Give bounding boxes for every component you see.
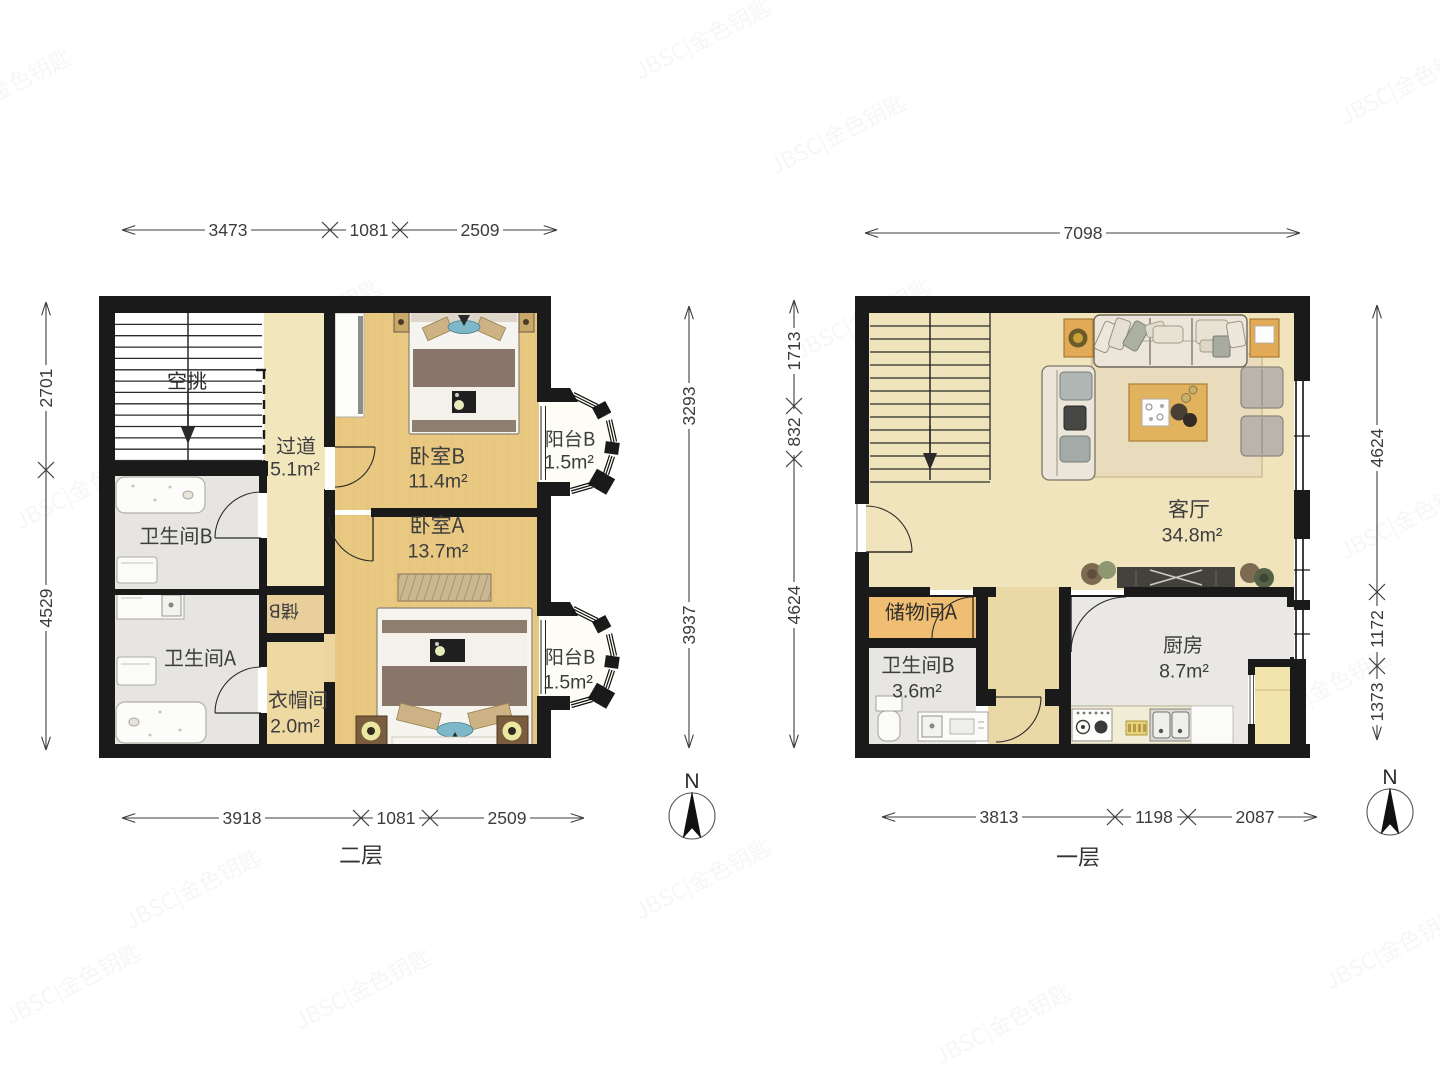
svg-text:3918: 3918 bbox=[223, 808, 262, 828]
svg-text:2701: 2701 bbox=[36, 369, 56, 408]
svg-text:3.6m²: 3.6m² bbox=[892, 681, 942, 703]
svg-text:7098: 7098 bbox=[1064, 223, 1103, 243]
svg-text:N: N bbox=[1382, 766, 1397, 789]
svg-text:4624: 4624 bbox=[784, 585, 804, 624]
svg-text:1081: 1081 bbox=[377, 808, 416, 828]
svg-text:2509: 2509 bbox=[488, 808, 527, 828]
svg-text:3813: 3813 bbox=[980, 807, 1019, 827]
svg-text:1713: 1713 bbox=[784, 332, 804, 371]
svg-text:1373: 1373 bbox=[1367, 683, 1387, 722]
svg-text:5.1m²: 5.1m² bbox=[270, 459, 320, 481]
svg-text:4624: 4624 bbox=[1367, 428, 1387, 467]
svg-text:2509: 2509 bbox=[461, 220, 500, 240]
svg-text:2.0m²: 2.0m² bbox=[270, 716, 320, 738]
svg-text:832: 832 bbox=[784, 417, 804, 446]
svg-text:3293: 3293 bbox=[679, 387, 699, 426]
svg-text:11.4m²: 11.4m² bbox=[408, 471, 468, 493]
svg-text:N: N bbox=[684, 770, 699, 793]
svg-text:1081: 1081 bbox=[350, 220, 389, 240]
svg-text:34.8m²: 34.8m² bbox=[1162, 525, 1223, 547]
svg-text:13.7m²: 13.7m² bbox=[408, 541, 469, 563]
svg-text:3473: 3473 bbox=[209, 220, 248, 240]
svg-text:8.7m²: 8.7m² bbox=[1159, 661, 1209, 683]
svg-text:4529: 4529 bbox=[36, 589, 56, 628]
svg-text:1172: 1172 bbox=[1367, 610, 1387, 648]
svg-text:1198: 1198 bbox=[1135, 807, 1173, 827]
svg-text:1.5m²: 1.5m² bbox=[544, 452, 594, 474]
svg-text:2087: 2087 bbox=[1236, 807, 1275, 827]
svg-text:3937: 3937 bbox=[679, 606, 699, 645]
svg-text:1.5m²: 1.5m² bbox=[543, 672, 593, 694]
